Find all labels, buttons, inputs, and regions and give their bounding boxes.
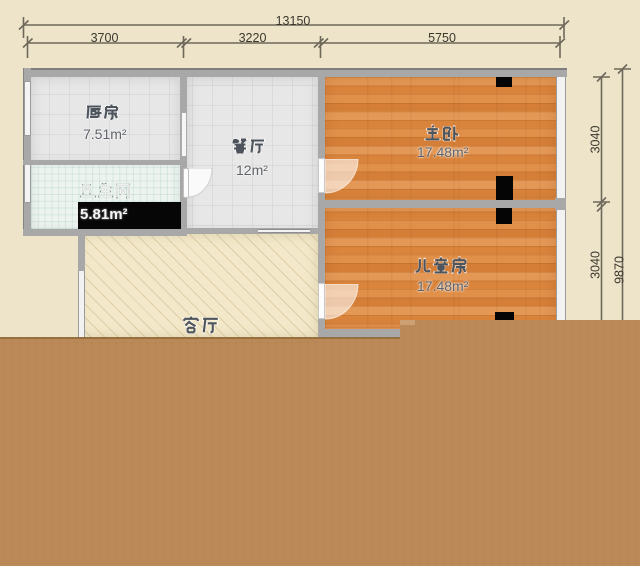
svg-text:3700: 3700	[91, 31, 119, 45]
svg-text:3040: 3040	[589, 251, 603, 279]
svg-text:9870: 9870	[613, 256, 627, 284]
svg-text:3220: 3220	[239, 31, 267, 45]
svg-text:5750: 5750	[428, 31, 456, 45]
svg-text:13150: 13150	[276, 14, 311, 28]
svg-text:3040: 3040	[589, 126, 603, 154]
